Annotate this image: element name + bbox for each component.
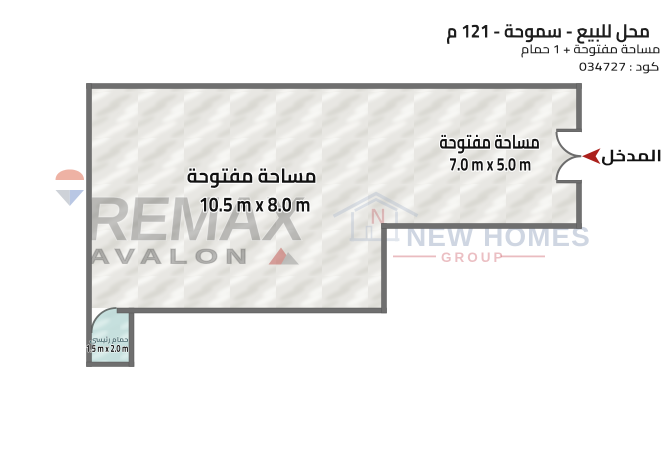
- svg-text:AVALON: AVALON: [88, 244, 254, 268]
- svg-text:GROUP: GROUP: [441, 250, 506, 265]
